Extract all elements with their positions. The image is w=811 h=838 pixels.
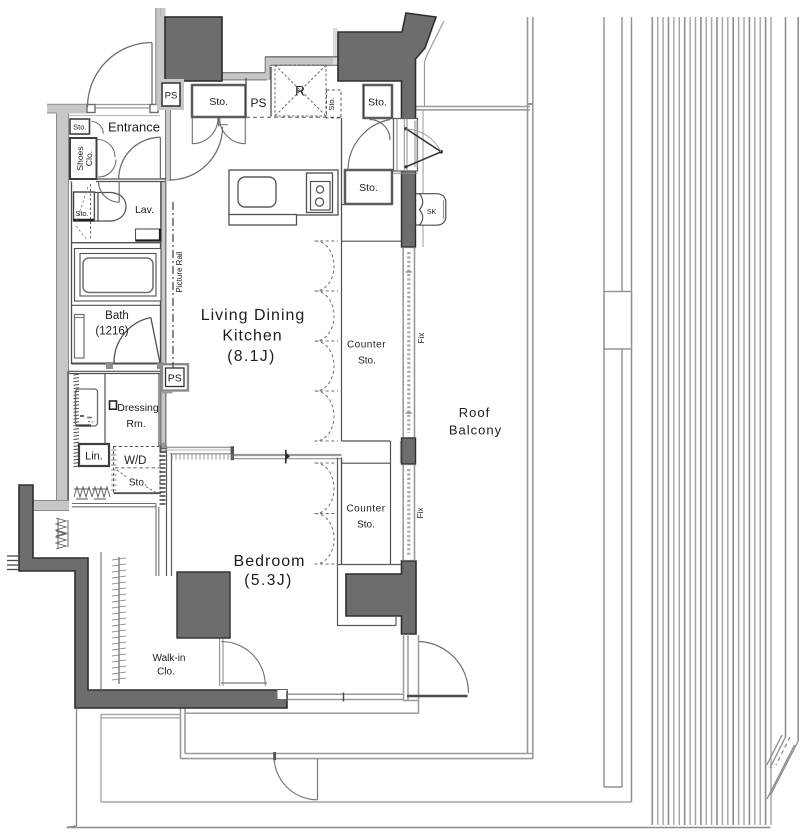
svg-text:Clo.: Clo. (84, 151, 94, 166)
svg-text:Dressing: Dressing (117, 402, 159, 414)
svg-text:Counter: Counter (346, 504, 385, 515)
svg-text:Sto.: Sto. (357, 520, 375, 531)
svg-text:(5.3J): (5.3J) (244, 572, 293, 589)
svg-text:R: R (295, 84, 305, 99)
svg-text:PS: PS (165, 91, 178, 102)
svg-text:Sto.: Sto. (209, 96, 228, 108)
svg-text:Living Dining: Living Dining (201, 307, 306, 324)
svg-text:Kitchen: Kitchen (222, 328, 282, 345)
svg-text:Clo.: Clo. (157, 667, 175, 678)
svg-text:PS: PS (250, 96, 266, 110)
svg-text:Sto.: Sto. (129, 478, 147, 489)
svg-text:Sto.: Sto. (327, 97, 336, 110)
svg-text:Sto.: Sto. (358, 356, 376, 367)
svg-text:Entrance: Entrance (108, 120, 160, 135)
svg-text:Sto.: Sto. (368, 97, 387, 109)
svg-text:Sto.: Sto. (75, 209, 88, 218)
svg-text:(1216): (1216) (95, 326, 128, 338)
svg-text:Lin.: Lin. (85, 451, 103, 463)
svg-text:Fix: Fix (417, 333, 426, 344)
svg-text:Balcony: Balcony (449, 423, 502, 438)
svg-text:Walk-in: Walk-in (153, 653, 186, 664)
svg-text:(8.1J): (8.1J) (227, 348, 276, 365)
svg-text:SK: SK (427, 209, 437, 216)
svg-text:Bedroom: Bedroom (234, 553, 306, 570)
svg-text:W/D: W/D (124, 455, 146, 467)
svg-text:Sto.: Sto. (73, 123, 86, 132)
svg-text:Bath: Bath (105, 310, 129, 322)
svg-text:Roof: Roof (459, 405, 490, 420)
svg-text:PS: PS (168, 373, 182, 385)
svg-text:Fix: Fix (416, 508, 425, 519)
svg-text:Picture Rail: Picture Rail (175, 251, 184, 292)
svg-text:Rm.: Rm. (126, 418, 145, 430)
svg-text:Lav.: Lav. (135, 204, 154, 216)
svg-text:Sto.: Sto. (359, 182, 378, 194)
svg-text:Counter: Counter (347, 340, 386, 351)
